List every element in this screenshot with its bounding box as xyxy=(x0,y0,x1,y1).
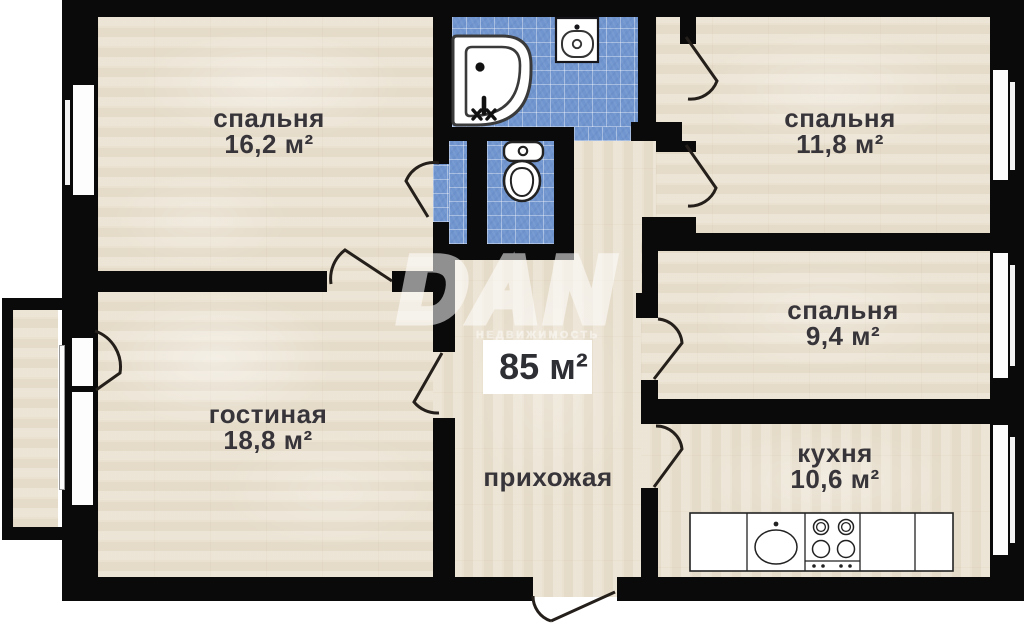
svg-text:DAN: DAN xyxy=(391,238,631,341)
